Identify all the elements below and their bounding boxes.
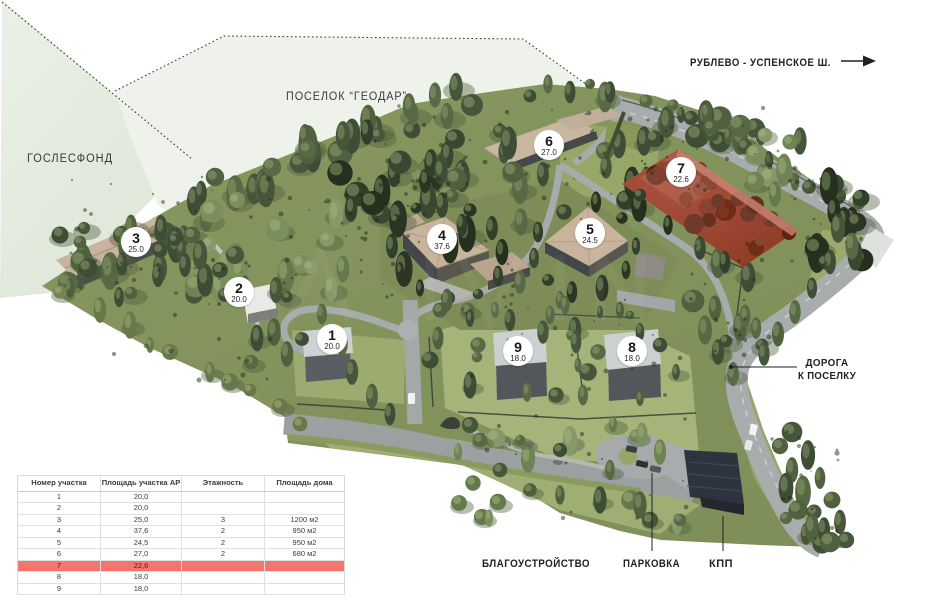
svg-text:25.0: 25.0 [128, 245, 144, 254]
svg-text:ПАРКОВКА: ПАРКОВКА [623, 558, 680, 570]
svg-text:5: 5 [586, 221, 594, 237]
svg-text:ГОСЛЕСФОНД: ГОСЛЕСФОНД [27, 153, 113, 165]
svg-text:ПОСЕЛОК “ГЕОДАР”: ПОСЕЛОК “ГЕОДАР” [286, 91, 407, 103]
svg-text:1: 1 [328, 327, 336, 343]
svg-text:20.0: 20.0 [231, 295, 247, 304]
svg-text:9: 9 [514, 339, 522, 355]
svg-text:3: 3 [132, 230, 140, 246]
svg-text:6: 6 [545, 133, 553, 149]
svg-text:К ПОСЕЛКУ: К ПОСЕЛКУ [798, 370, 856, 382]
svg-text:24.5: 24.5 [582, 236, 598, 245]
svg-text:18.0: 18.0 [510, 354, 526, 363]
svg-text:2: 2 [235, 280, 243, 296]
svg-text:БЛАГОУСТРОЙСТВО: БЛАГОУСТРОЙСТВО [482, 557, 590, 570]
svg-text:7: 7 [677, 160, 685, 176]
svg-text:ДОРОГА: ДОРОГА [806, 357, 849, 369]
svg-text:8: 8 [628, 339, 636, 355]
svg-text:4: 4 [438, 227, 446, 243]
svg-text:27.0: 27.0 [541, 148, 557, 157]
svg-text:18.0: 18.0 [624, 354, 640, 363]
svg-text:20.0: 20.0 [324, 342, 340, 351]
svg-text:РУБЛЕВО - УСПЕНСКОЕ Ш.: РУБЛЕВО - УСПЕНСКОЕ Ш. [690, 57, 831, 69]
svg-text:КПП: КПП [709, 558, 733, 570]
svg-text:37.6: 37.6 [434, 242, 450, 251]
svg-text:22.6: 22.6 [673, 175, 689, 184]
